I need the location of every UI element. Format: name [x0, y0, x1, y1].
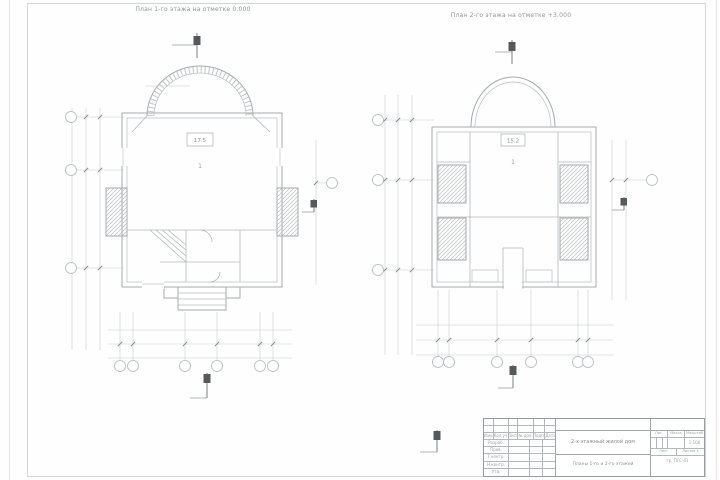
- col-header: Дата: [545, 433, 555, 439]
- axis-circle: [128, 361, 139, 372]
- axis-circle: [66, 112, 77, 123]
- plan1-title: План 1-го этажа на отметке 0.000: [113, 6, 273, 13]
- cell: [530, 462, 543, 468]
- room-area-label: 17.5: [194, 138, 207, 144]
- cell: [509, 440, 530, 446]
- listov-value: 1: [696, 450, 698, 454]
- mass-label: Масса: [668, 431, 685, 437]
- title-block-name-section: 2-х этажный жилой дом Планы 1-го и 2-го …: [556, 419, 651, 476]
- plan2-section-mark-right: [612, 197, 627, 210]
- cell: [509, 454, 530, 460]
- document-code-cell: [556, 419, 650, 431]
- signature-row: Пров.: [484, 447, 555, 454]
- cell: [484, 419, 494, 425]
- plan2-central-recess: [503, 248, 523, 289]
- cell: [484, 426, 494, 432]
- cell: [543, 454, 555, 460]
- title-block-revision-table: Изм. Кол.уч. Лист № док. Подп. Дата Разр…: [484, 419, 556, 476]
- sheet-count-row: Лист Листов 1: [651, 449, 704, 456]
- plan1-room-tag: 17.5 1: [187, 133, 213, 170]
- cell: [530, 469, 543, 476]
- cell: [543, 440, 555, 446]
- axis-circle: [212, 361, 223, 372]
- col-header: Изм.: [484, 433, 494, 439]
- cell: [509, 462, 530, 468]
- plan2-room-tag: 15.2 1: [501, 134, 525, 166]
- axis-circle: [268, 361, 279, 372]
- cell: [545, 426, 555, 432]
- cell: [518, 419, 534, 425]
- axis-circle: [66, 165, 77, 176]
- cell: [543, 462, 555, 468]
- axis-circle: [583, 357, 594, 368]
- revision-header-row: Изм. Кол.уч. Лист № док. Подп. Дата: [484, 433, 555, 440]
- mass-cell: [668, 438, 685, 448]
- cell: [545, 419, 555, 425]
- plan2-axis-markers: [373, 115, 658, 368]
- axis-circle: [573, 357, 584, 368]
- axis-circle: [526, 357, 537, 368]
- signature-row: Утв.: [484, 469, 555, 476]
- cell: [509, 426, 518, 432]
- scale-value: 1:100: [685, 438, 704, 448]
- cell: [543, 447, 555, 453]
- plan1-section-mark-right: [302, 199, 317, 212]
- axis-circle: [373, 115, 384, 126]
- axis-circle: [255, 361, 266, 372]
- col-header: Лист: [509, 433, 518, 439]
- signature-row: Разраб.: [484, 440, 555, 447]
- floor-plan-1: 17.5 1: [50, 20, 350, 420]
- plan2-dimension-ticks: [383, 118, 628, 342]
- revision-row: [484, 426, 555, 433]
- axis-circle: [66, 263, 77, 274]
- cell: [509, 419, 518, 425]
- col-header: Кол.уч.: [494, 433, 509, 439]
- role-label: Н.контр.: [484, 462, 509, 468]
- title-block-right-section: Лит. Масса Масштаб 1:100 Лист Листов 1 г…: [651, 419, 704, 476]
- col-header: № док.: [518, 433, 534, 439]
- drawing-sheet: План 1-го этажа на отметке 0.000 План 2-…: [0, 0, 720, 480]
- signature-row: Т.контр.: [484, 454, 555, 461]
- cell: [530, 454, 543, 460]
- right-value-row: 1:100: [651, 438, 704, 449]
- sheet-name: Планы 1-го и 2-го этажей: [556, 455, 650, 475]
- cell: [534, 419, 545, 425]
- listov-cell: Листов 1: [677, 449, 704, 455]
- axis-circle: [647, 175, 658, 186]
- plan2-title: План 2-го этажа на отметке +3.000: [431, 12, 591, 19]
- plan1-windows: [119, 148, 285, 289]
- cell: [494, 426, 509, 432]
- cell: [530, 447, 543, 453]
- cell: [534, 426, 545, 432]
- title-block: Изм. Кол.уч. Лист № док. Подп. Дата Разр…: [483, 418, 705, 477]
- role-label: Разраб.: [484, 440, 509, 446]
- axis-circle: [492, 357, 503, 368]
- cell: [494, 419, 509, 425]
- cell: [530, 440, 543, 446]
- plan2-partitions: [437, 132, 591, 287]
- plan1-axis-markers: [66, 112, 338, 372]
- axis-circle: [115, 361, 126, 372]
- cell: [543, 469, 555, 476]
- spare-cell: [651, 419, 704, 431]
- room-number-label: 1: [511, 159, 515, 166]
- plan1-walls: [106, 66, 298, 310]
- plan1-section-mark-bottom: [190, 373, 211, 398]
- axis-circle: [433, 357, 444, 368]
- room-number-label: 1: [198, 163, 202, 170]
- document-title: 2-х этажный жилой дом: [556, 431, 650, 455]
- plan2-section-mark-bottom: [498, 365, 517, 388]
- bay-wall-hatch: [151, 70, 250, 117]
- cell: [509, 469, 530, 476]
- plan2-section-mark-lower: [420, 430, 441, 452]
- axis-circle: [373, 175, 384, 186]
- listov-label: Листов: [682, 450, 695, 454]
- plan1-section-mark-top: [172, 33, 201, 58]
- role-label: Утв.: [484, 469, 509, 476]
- revision-row: [484, 419, 555, 426]
- organization-cell: гр. ПГС-41: [651, 456, 704, 475]
- axis-circle: [327, 178, 338, 189]
- axis-circle: [180, 361, 191, 372]
- col-header: Подп.: [534, 433, 545, 439]
- list-label: Лист: [651, 449, 677, 455]
- right-header-row: Лит. Масса Масштаб: [651, 431, 704, 438]
- scale-label: Масштаб: [685, 431, 704, 437]
- room-area-label: 15.2: [507, 139, 519, 145]
- role-label: Т.контр.: [484, 454, 509, 460]
- lit-label: Лит.: [651, 431, 668, 437]
- cell: [518, 426, 534, 432]
- sheet-edge-left: [9, 0, 10, 480]
- axis-circle: [373, 265, 384, 276]
- signature-row: Н.контр.: [484, 462, 555, 469]
- role-label: Пров.: [484, 447, 509, 453]
- axis-circle: [444, 357, 455, 368]
- sheet-edge-right: [716, 0, 717, 480]
- plan2-section-mark-top: [495, 40, 516, 64]
- plan2-walls: [432, 77, 596, 287]
- floor-plan-2: 15.2 1: [358, 20, 670, 470]
- cell: [509, 447, 530, 453]
